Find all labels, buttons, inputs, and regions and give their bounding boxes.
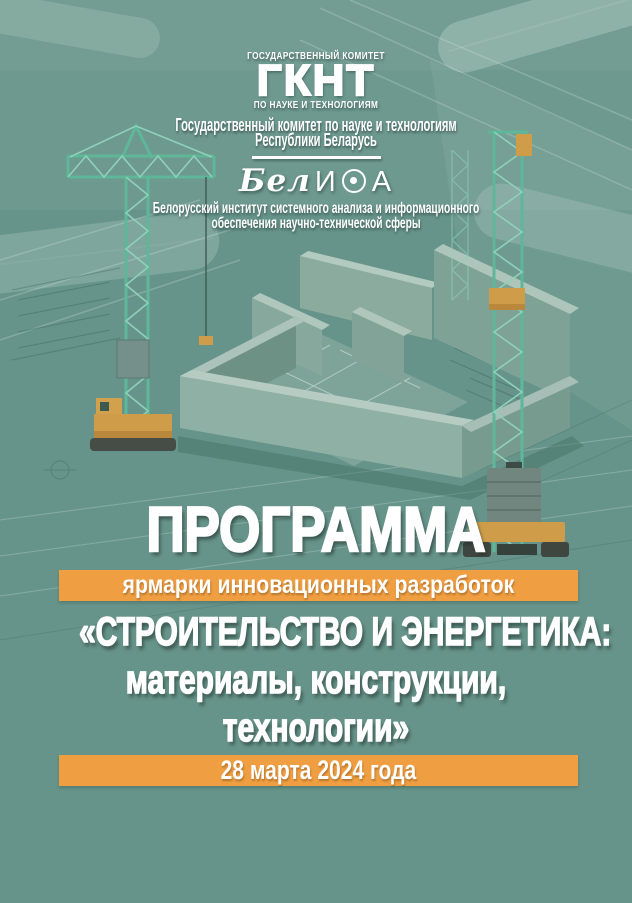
- belisa-description-line1: Белорусский институт системного анализа …: [107, 201, 524, 217]
- gknt-logo-bottom-line: ПО НАУКЕ И ТЕХНОЛОГИЯМ: [57, 100, 575, 111]
- subtitle-banner-text: ярмарки инновационных разработок: [123, 571, 515, 600]
- gknt-logo: ГОСУДАРСТВЕННЫЙ КОМИТЕТ ГКНТ ПО НАУКЕ И …: [0, 51, 632, 111]
- gknt-logo-acronym: ГКНТ: [0, 63, 632, 99]
- event-title: «СТРОИТЕЛЬСТВО И ЭНЕРГЕТИКА: материалы, …: [0, 608, 632, 752]
- program-title: ПРОГРАММА: [51, 500, 582, 560]
- date-banner-text: 28 марта 2024 года: [221, 755, 417, 786]
- cover-content: ГОСУДАРСТВЕННЫЙ КОМИТЕТ ГКНТ ПО НАУКЕ И …: [0, 0, 632, 903]
- belisa-description-line2: обеспечения научно-технической сферы: [107, 216, 524, 232]
- header: ГОСУДАРСТВЕННЫЙ КОМИТЕТ ГКНТ ПО НАУКЕ И …: [0, 51, 632, 232]
- event-title-line1: «СТРОИТЕЛЬСТВО И ЭНЕРГЕТИКА:: [79, 608, 553, 656]
- program-cover-page: ГОСУДАРСТВЕННЫЙ КОМИТЕТ ГКНТ ПО НАУКЕ И …: [0, 0, 632, 903]
- belisa-logo-script-part: Бел: [239, 163, 311, 199]
- committee-name-line2: Республики Беларусь: [120, 133, 512, 148]
- belisa-logo-letter-a: А: [372, 166, 393, 198]
- subtitle-banner: ярмарки инновационных разработок: [59, 570, 578, 601]
- header-divider: [252, 156, 381, 159]
- event-title-line2: материалы, конструкции,: [79, 656, 553, 704]
- belisa-circle-dot-icon: [342, 169, 366, 193]
- event-title-line3: технологии»: [79, 704, 553, 752]
- belisa-logo-letter-i: И: [315, 166, 338, 198]
- date-banner: 28 марта 2024 года: [59, 755, 578, 786]
- gknt-logo-top-line: ГОСУДАРСТВЕННЫЙ КОМИТЕТ: [57, 51, 575, 63]
- belisa-logo: БелИА: [0, 166, 632, 197]
- belisa-circle-dot-center: [350, 177, 357, 184]
